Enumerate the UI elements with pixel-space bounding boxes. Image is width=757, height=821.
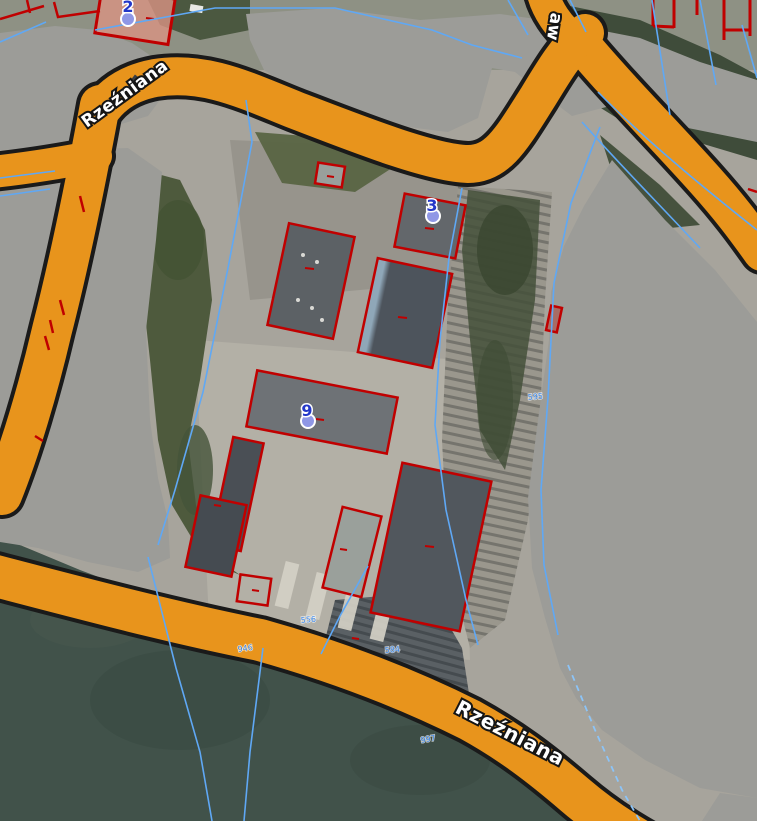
street-label-rzezniana-top: Rzeźniana <box>78 56 172 132</box>
marker-3-number: 3 <box>426 196 437 215</box>
parcel-label-946: 946 <box>237 643 253 654</box>
marker-9[interactable]: 9 <box>301 401 315 428</box>
parcel-number-labels: 946 584 997 595 556 <box>237 392 543 745</box>
street-labels: Rzeźniana Rzeźniana aw <box>78 11 569 770</box>
label-layer: 2 3 9 Rzeźniana Rzeźniana aw 946 584 997… <box>0 0 757 821</box>
marker-2[interactable]: 2 <box>121 0 135 26</box>
marker-2-number: 2 <box>122 0 133 16</box>
parcel-label-556: 556 <box>300 615 316 625</box>
street-label-rzezniana-bottom: Rzeźniana <box>452 695 569 770</box>
address-markers: 2 3 9 <box>121 0 440 428</box>
street-label-partial-vertical: aw <box>542 11 566 42</box>
map-canvas[interactable]: 2 3 9 Rzeźniana Rzeźniana aw 946 584 997… <box>0 0 757 821</box>
marker-3[interactable]: 3 <box>426 196 440 223</box>
marker-9-number: 9 <box>301 401 312 420</box>
parcel-label-584: 584 <box>384 645 400 655</box>
parcel-label-997: 997 <box>420 733 437 745</box>
parcel-label-595: 595 <box>527 392 543 402</box>
